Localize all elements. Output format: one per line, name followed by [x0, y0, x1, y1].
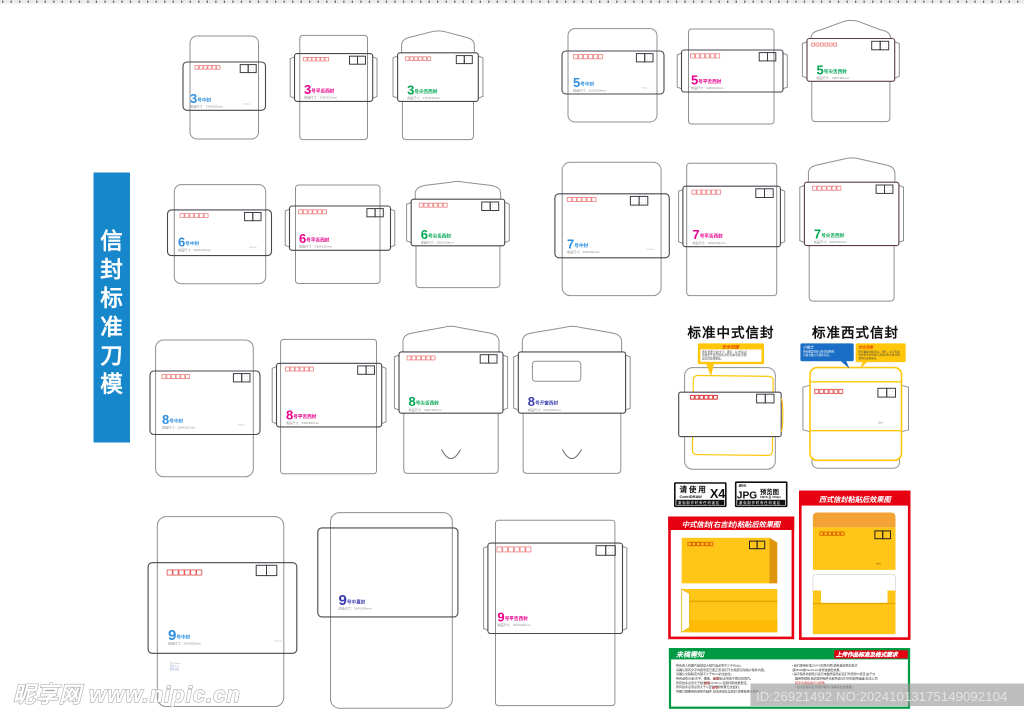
svg-text:B-01-xx: B-01-xx	[647, 249, 655, 251]
svg-text:成品尺寸：230X120mm: 成品尺寸：230X120mm	[299, 243, 332, 248]
svg-text:Back: Back	[878, 422, 884, 425]
svg-text:裁切后效果更佳。: 裁切后效果更佳。	[702, 357, 724, 361]
svg-text:须放置于此范围内,黄色为参考线,印刷: 须放置于此范围内,黄色为参考线,印刷	[702, 353, 747, 357]
svg-text:上传作品标准及格式要求: 上传作品标准及格式要求	[836, 652, 899, 659]
svg-text:所有线条必须大于极准线0.076mm,显刷印刷效果更佳。: 所有线条必须大于极准线0.076mm,显刷印刷效果更佳。	[676, 680, 749, 685]
svg-text:裁切后效果更佳。: 裁切后效果更佳。	[859, 356, 879, 360]
svg-text:标准中式信封: 标准中式信封	[687, 325, 775, 341]
svg-text:号平舌西封: 号平舌西封	[505, 615, 528, 622]
svg-text:封: 封	[100, 258, 123, 283]
svg-text:B-01-xx: B-01-xx	[642, 88, 650, 90]
svg-text:成品尺寸：220X110mm: 成品尺寸：220X110mm	[573, 88, 606, 93]
svg-text:可放全图以不超利为佳。: 可放全图以不超利为佳。	[803, 353, 832, 357]
svg-text:准: 准	[100, 315, 123, 340]
svg-text:请确认所有文字内容须否已更正误,我们不负稿意见动稿户稿件内容: 请确认所有文字内容须否已更正误,我们不负稿意见动稿户稿件内容。	[676, 667, 767, 672]
svg-text:供图只需要用有完整内辅件,恕未来得及实别时,郑重拒绝不重发。: 供图只需要用有完整内辅件,恕未来得及实别时,郑重拒绝不重发。	[676, 689, 762, 694]
svg-text:号平舌西封: 号平舌西封	[700, 233, 723, 240]
svg-text:所有线条必须必须大于4,否则印刷效果无法会别。: 所有线条必须必须大于4,否则印刷效果无法会别。	[676, 684, 742, 689]
svg-text:安全范围: 安全范围	[722, 345, 740, 350]
svg-text:避免制作时有任何误区: 避免制作时有任何误区	[678, 500, 720, 505]
svg-text:成品尺寸：230X162mm: 成品尺寸：230X162mm	[162, 425, 195, 430]
svg-text:▪ 提示稿件的颜色只会与电脑所呈色彩显打印纸张%核定,由于仪: ▪ 提示稿件的颜色只会与电脑所呈色彩显打印纸张%核定,由于仪	[792, 671, 875, 676]
svg-text:成品尺寸：220X110mm: 成品尺寸：220X110mm	[691, 85, 724, 90]
svg-text:成品尺寸：324X229mm: 成品尺寸：324X229mm	[168, 641, 201, 646]
svg-text:CMYK,且 150dpi: CMYK,且 150dpi	[760, 495, 781, 499]
svg-text:号尖舌西封: 号尖舌西封	[821, 232, 844, 239]
svg-text:号开窗西封: 号开窗西封	[535, 400, 558, 407]
svg-text:成品尺寸：324X229mm: 成品尺寸：324X229mm	[339, 605, 372, 610]
svg-text:成品尺寸：176X125mm: 成品尺寸：176X125mm	[190, 104, 223, 109]
svg-text:请使用: 请使用	[680, 484, 708, 494]
svg-text:中式信封(右吉封)粘贴后效果图: 中式信封(右吉封)粘贴后效果图	[682, 520, 782, 529]
svg-text:避免制作时有任何误区: 避免制作时有任何误区	[739, 500, 781, 505]
svg-text:号平舌西封: 号平舌西封	[311, 87, 334, 94]
svg-text:成品尺寸：324X229mm: 成品尺寸：324X229mm	[497, 622, 530, 627]
svg-text:B-01-xx: B-01-xx	[250, 247, 258, 249]
svg-text:JPG: JPG	[737, 490, 757, 501]
svg-text:西式信封粘贴后效果图: 西式信封粘贴后效果图	[819, 495, 893, 504]
svg-text:CorelDRAW: CorelDRAW	[680, 494, 703, 499]
svg-text:nipic: nipic	[876, 563, 882, 566]
svg-text:号平舌西封: 号平舌西封	[698, 78, 721, 85]
svg-text:号中封: 号中封	[574, 242, 588, 249]
svg-text:成品尺寸：229X162mm: 成品尺寸：229X162mm	[692, 240, 725, 245]
svg-text:成品尺寸：229X162mm: 成品尺寸：229X162mm	[814, 239, 847, 244]
svg-text:刀: 刀	[100, 343, 123, 368]
svg-text:B-01-xx: B-01-xx	[244, 104, 252, 106]
svg-text:号尖舌西封: 号尖舌西封	[428, 232, 451, 239]
svg-text:成品尺寸：230X120mm: 成品尺寸：230X120mm	[178, 247, 211, 252]
svg-text:安全范围: 安全范围	[859, 344, 875, 349]
svg-text:号平舌西封: 号平舌西封	[293, 413, 316, 420]
svg-text:来稿需知: 来稿需知	[676, 650, 705, 659]
svg-text:模: 模	[100, 372, 123, 397]
svg-text:号尖舌西封: 号尖舌西封	[416, 400, 439, 407]
svg-text:标准西式信封: 标准西式信封	[811, 325, 899, 341]
svg-text:必须: 必须	[713, 676, 719, 681]
svg-text:B-01-xx: B-01-xx	[238, 425, 246, 427]
svg-text:B-01-xx: B-01-xx	[275, 641, 283, 643]
svg-text:号中封: 号中封	[176, 634, 190, 641]
svg-text:(即RGB或PanTone)将导致偏色效果。: (即RGB或PanTone)将导致偏色效果。	[792, 667, 842, 672]
svg-text:必须: 必须	[712, 684, 718, 689]
svg-text:号中封: 号中封	[185, 240, 199, 247]
svg-text:成品尺寸：230X162mm: 成品尺寸：230X162mm	[409, 407, 442, 412]
svg-text:号尖舌西封: 号尖舌西封	[824, 68, 847, 75]
svg-text:号尖舌西封: 号尖舌西封	[414, 88, 437, 95]
svg-text:请转存: 请转存	[739, 483, 747, 487]
svg-text:器用色规格,稿后提供稿件无颜色由与打印机颜色偏差,恕本公司: 器用色规格,稿后提供稿件无颜色由与打印机颜色偏差,恕本公司	[795, 676, 878, 681]
svg-text:号中直封: 号中直封	[347, 598, 366, 605]
svg-text:昵享网 www.nipic.cn: 昵享网 www.nipic.cn	[13, 682, 241, 707]
svg-text:ID:26921492 NO:202410131751490: ID:26921492 NO:20241013175149092104	[756, 689, 1007, 704]
svg-text:标: 标	[100, 286, 123, 311]
svg-text:X4: X4	[710, 487, 725, 501]
svg-text:小贴士: 小贴士	[803, 344, 814, 349]
svg-text:所有覆盖填在以外均四整修,: 所有覆盖填在以外均四整修,	[803, 350, 835, 354]
svg-text:成品尺寸：230X162mm: 成品尺寸：230X162mm	[286, 420, 319, 425]
svg-text:请确认交稿稿定内容不少于5mm的出血位。: 请确认交稿稿定内容不少于5mm的出血位。	[676, 671, 734, 676]
svg-text:号中封: 号中封	[580, 81, 594, 88]
svg-text:成品尺寸：230X162mm: 成品尺寸：230X162mm	[528, 407, 561, 412]
svg-text:成品尺寸：176X125mm: 成品尺寸：176X125mm	[407, 95, 440, 100]
svg-text:所有重要元素(文字、图片、标志等)必: 所有重要元素(文字、图片、标志等)必	[702, 350, 747, 354]
svg-text:必须: 必须	[704, 680, 710, 685]
svg-text:所有成人的图片稿纸最大幅均选必须不少于90dpi。: 所有成人的图片稿纸最大幅均选必须不少于90dpi。	[676, 663, 743, 668]
svg-text:号中封: 号中封	[197, 97, 211, 104]
svg-text:号中封: 号中封	[169, 418, 183, 425]
svg-text:成品尺寸：229X162mm: 成品尺寸：229X162mm	[567, 249, 600, 254]
svg-text:成品尺寸：220X110mm: 成品尺寸：220X110mm	[817, 75, 850, 80]
svg-text:成品尺寸：230X120mm: 成品尺寸：230X120mm	[421, 239, 454, 244]
svg-text:预览图: 预览图	[760, 487, 779, 496]
svg-text:信: 信	[100, 228, 123, 254]
svg-text:成品尺寸：176X125mm: 成品尺寸：176X125mm	[304, 95, 337, 100]
svg-text:▪ 我们使用标准CMYK四色印刷,使用其他色彩模式: ▪ 我们使用标准CMYK四色印刷,使用其他色彩模式	[792, 663, 857, 668]
svg-text:号平舌西封: 号平舌西封	[306, 236, 329, 243]
